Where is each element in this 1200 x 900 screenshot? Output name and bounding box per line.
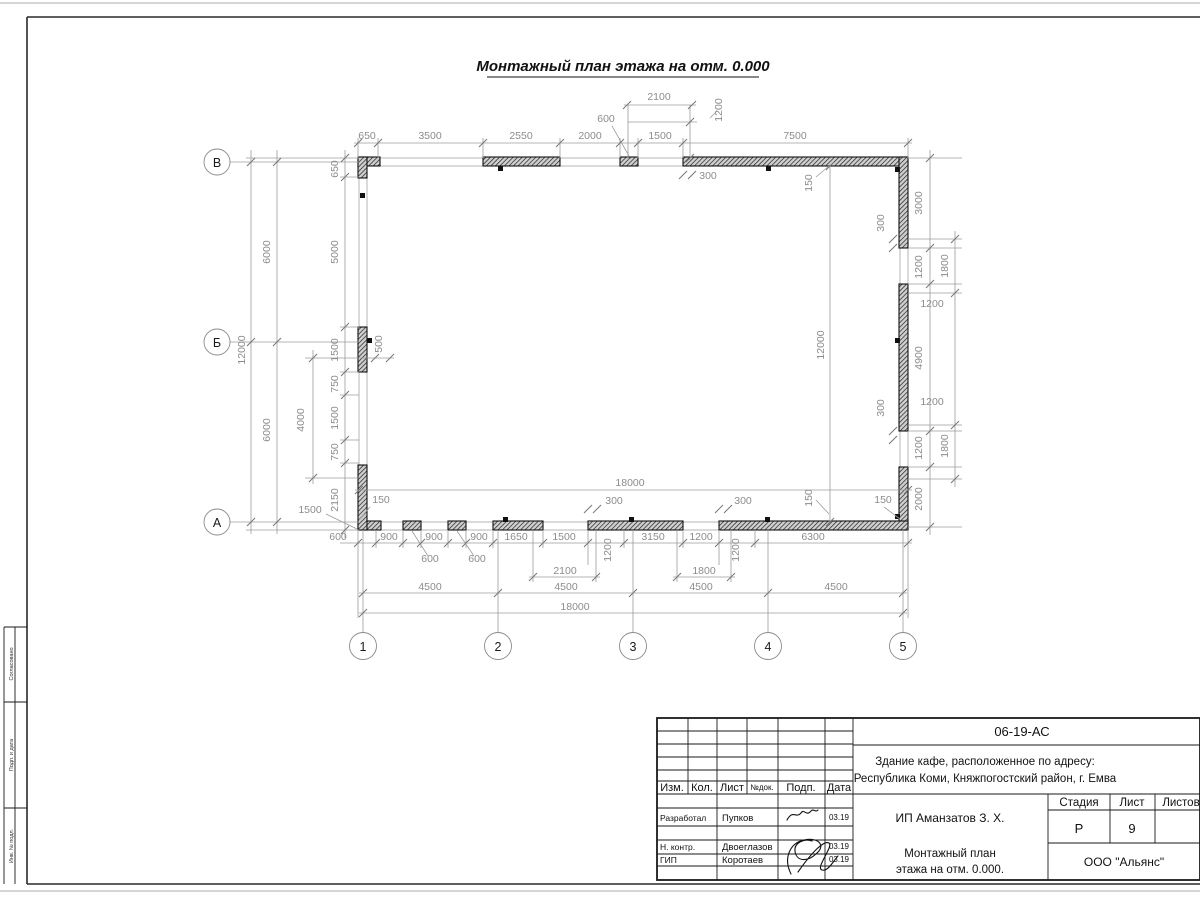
dimension-label: 7500 — [783, 130, 807, 142]
col-kol: Кол. — [691, 782, 713, 794]
dimension-label: 6000 — [261, 240, 273, 264]
sheet-value: 9 — [1128, 821, 1135, 836]
sheet-label: Лист — [1120, 797, 1146, 809]
dimension-label: 150 — [803, 174, 815, 192]
dimension-label: 4500 — [554, 581, 578, 593]
plan-title: Монтажный план этажа на отм. 0.000 — [476, 58, 770, 75]
dimension-label: 300 — [875, 214, 887, 232]
row-date-2: 03.19 — [829, 855, 850, 864]
dimension-label: 1200 — [730, 538, 742, 562]
signature-razrabotal — [787, 810, 818, 820]
dimension-label: 3500 — [418, 130, 442, 142]
axis-grid-lines — [230, 162, 903, 633]
dimension-label: 300 — [734, 495, 752, 507]
dimension-label: 600 — [597, 113, 615, 125]
col-ndoc: №док. — [750, 783, 773, 792]
dimension-label: 750 — [329, 375, 341, 393]
dimension-label: 3150 — [641, 531, 665, 543]
dimension-label: 2150 — [329, 488, 341, 512]
dimension-label: 150 — [372, 494, 390, 506]
dimension-label: 1800 — [692, 565, 716, 577]
dimension-label: 2000 — [578, 130, 602, 142]
dimension-lines — [251, 105, 955, 613]
dimension-label: 2100 — [647, 91, 671, 103]
dimension-label: 1500 — [552, 531, 576, 543]
axis-label-2: 2 — [495, 640, 502, 654]
dimension-label: 1200 — [920, 298, 944, 310]
row-name-korotaev: Коротаев — [722, 855, 763, 866]
client-name: ИП Аманзатов З. Х. — [895, 811, 1004, 825]
strip-label-soglasovano: Согласовано — [9, 647, 15, 680]
col-list: Лист — [720, 782, 744, 794]
row-role-razrabotal: Разработал — [660, 813, 706, 823]
dimension-label: 600 — [468, 553, 486, 565]
dimension-label: 150 — [803, 489, 815, 507]
dimension-label: 500 — [373, 335, 385, 353]
dimension-label: 900 — [470, 531, 488, 543]
dimension-label: 1200 — [689, 531, 713, 543]
dimension-label: 2000 — [913, 487, 925, 511]
sheet-title: Монтажный план этажа на отм. 0.000 — [476, 58, 770, 77]
dimension-label: 4500 — [824, 581, 848, 593]
title-block: 06-19-АС Здание кафе, расположенное по а… — [657, 718, 1200, 880]
dimension-label: 1500 — [329, 406, 341, 430]
dimension-labels: 6503500255020001500750021006001200300150… — [236, 91, 951, 613]
dimension-label: 2550 — [509, 130, 533, 142]
dimension-label: 900 — [380, 531, 398, 543]
strip-label-inv-podl: Инв. № подл. — [9, 828, 15, 863]
dimension-label: 4500 — [418, 581, 442, 593]
drawing-sheet: Согласовано Подп. и дата Инв. № подл. Мо… — [0, 0, 1200, 900]
col-data: Дата — [827, 782, 852, 794]
axis-label-b: Б — [213, 336, 221, 350]
row-date-0: 03.19 — [829, 813, 850, 822]
axis-label-4: 4 — [765, 640, 772, 654]
dimension-label: 6300 — [801, 531, 825, 543]
dimension-label: 12000 — [236, 335, 248, 364]
dimension-label: 2100 — [553, 565, 577, 577]
row-date-1: 03.19 — [829, 842, 850, 851]
dimension-label: 1200 — [913, 255, 925, 279]
col-izm: Изм. — [660, 782, 684, 794]
row-name-dvoeglazov: Двоеглазов — [722, 842, 773, 853]
object-address-line1: Здание кафе, расположенное по адресу: — [875, 756, 1095, 768]
dimension-label: 1500 — [298, 504, 322, 516]
dimension-label: 750 — [329, 443, 341, 461]
dimension-label: 650 — [329, 160, 341, 178]
dimension-label: 1200 — [913, 436, 925, 460]
sheet-frame — [27, 17, 1200, 884]
sheets-label: Листов — [1162, 797, 1199, 809]
dimension-label: 5000 — [329, 240, 341, 264]
drawing-title-line1: Монтажный план — [904, 848, 996, 860]
axis-label-3: 3 — [630, 640, 637, 654]
dimension-label: 300 — [605, 495, 623, 507]
strip-label-podp-data: Подп. и дата — [9, 738, 15, 771]
dimension-label: 18000 — [560, 601, 589, 613]
dimension-label: 900 — [425, 531, 443, 543]
dimension-label: 1200 — [713, 98, 725, 122]
axis-label-a: А — [213, 516, 222, 530]
drawing-title-line2: этажа на отм. 0.000. — [896, 864, 1004, 876]
col-podp: Подп. — [786, 782, 815, 794]
dimension-label: 6000 — [261, 418, 273, 442]
company-name: ООО "Альянс" — [1084, 855, 1164, 869]
dimension-label: 1200 — [602, 538, 614, 562]
dimension-label: 1500 — [648, 130, 672, 142]
dimension-label: 150 — [874, 494, 892, 506]
row-role-nkontr: Н. контр. — [660, 842, 695, 852]
doc-number: 06-19-АС — [994, 724, 1049, 739]
dimension-label: 18000 — [615, 477, 644, 489]
axis-label-1: 1 — [360, 640, 367, 654]
axis-labels: В Б А 1 2 3 4 5 — [213, 156, 907, 654]
stage-value: Р — [1075, 821, 1084, 836]
dimension-label: 4000 — [295, 408, 307, 432]
dimension-label: 650 — [358, 130, 376, 142]
dimension-label: 4900 — [913, 346, 925, 370]
dimension-label: 300 — [699, 170, 717, 182]
dimension-label: 600 — [421, 553, 439, 565]
cad-drawing: Согласовано Подп. и дата Инв. № подл. Мо… — [0, 0, 1200, 900]
dimension-label: 600 — [329, 531, 347, 543]
dimension-label: 1800 — [939, 254, 951, 278]
dimension-label: 4500 — [689, 581, 713, 593]
left-attribute-strip: Согласовано Подп. и дата Инв. № подл. — [4, 627, 27, 884]
axis-label-5: 5 — [900, 640, 907, 654]
dimension-label: 1650 — [504, 531, 528, 543]
dimension-label: 3000 — [913, 191, 925, 215]
dimension-label: 1800 — [939, 434, 951, 458]
row-name-pupkov: Пупков — [722, 813, 753, 824]
row-role-gip: ГИП — [660, 855, 677, 865]
object-address-line2: Республика Коми, Княжпогостский район, г… — [854, 773, 1117, 785]
dimension-label: 1500 — [329, 338, 341, 362]
stage-label: Стадия — [1059, 797, 1098, 809]
dimension-label: 300 — [875, 399, 887, 417]
axis-label-v: В — [213, 156, 221, 170]
dimension-label: 12000 — [815, 330, 827, 359]
dimension-label: 1200 — [920, 396, 944, 408]
